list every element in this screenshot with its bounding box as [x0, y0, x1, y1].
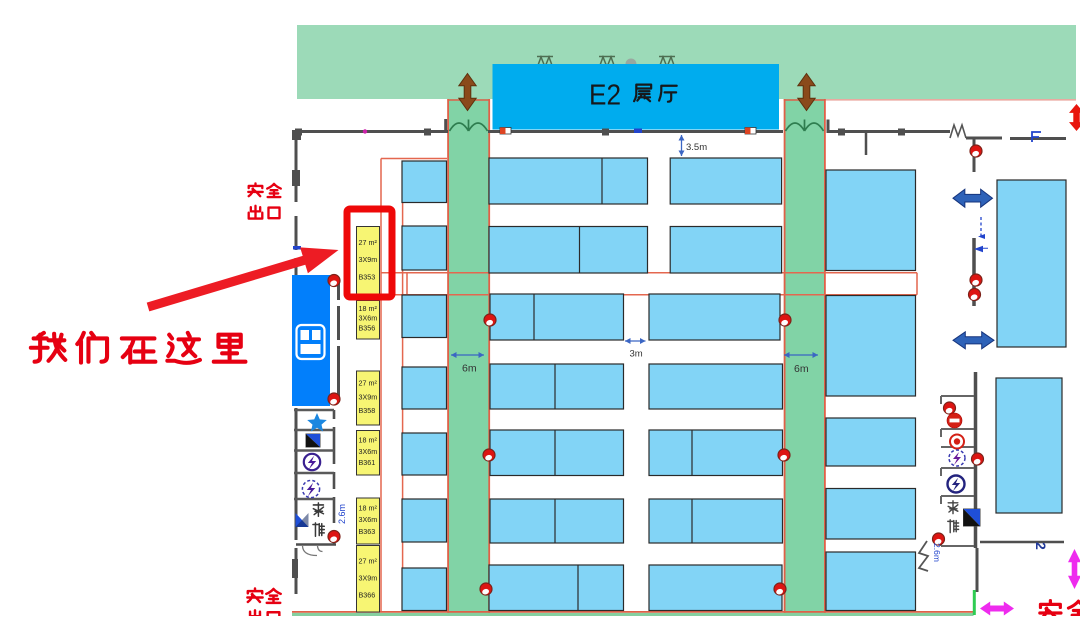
svg-text:18 m²: 18 m² — [359, 503, 378, 512]
svg-text:27 m²: 27 m² — [359, 379, 378, 388]
svg-text:2: 2 — [1033, 542, 1049, 550]
svg-text:B363: B363 — [359, 527, 376, 536]
svg-text:18 m²: 18 m² — [359, 436, 378, 445]
svg-text:B361: B361 — [359, 458, 376, 467]
svg-text:B366: B366 — [359, 590, 376, 599]
svg-text:3X9m: 3X9m — [359, 392, 378, 401]
svg-text:6m: 6m — [462, 363, 477, 375]
svg-text:3X6m: 3X6m — [359, 447, 378, 456]
svg-text:3X9m: 3X9m — [359, 573, 378, 582]
svg-text:B353: B353 — [359, 273, 376, 282]
svg-text:18 m²: 18 m² — [359, 304, 378, 313]
svg-text:27 m²: 27 m² — [359, 557, 378, 566]
svg-text:3X6m: 3X6m — [359, 515, 378, 524]
svg-text:3m: 3m — [630, 349, 643, 360]
svg-text:B356: B356 — [359, 324, 376, 333]
svg-text:3.5m: 3.5m — [686, 142, 707, 153]
svg-text:E2: E2 — [589, 80, 621, 112]
svg-text:2.6m: 2.6m — [932, 543, 942, 562]
svg-text:3X9m: 3X9m — [359, 255, 378, 264]
svg-text:3X6m: 3X6m — [359, 314, 378, 323]
svg-text:6m: 6m — [794, 363, 809, 375]
svg-text:27 m²: 27 m² — [359, 238, 378, 247]
svg-text:2.6m: 2.6m — [337, 504, 347, 524]
svg-text:B358: B358 — [359, 406, 376, 415]
